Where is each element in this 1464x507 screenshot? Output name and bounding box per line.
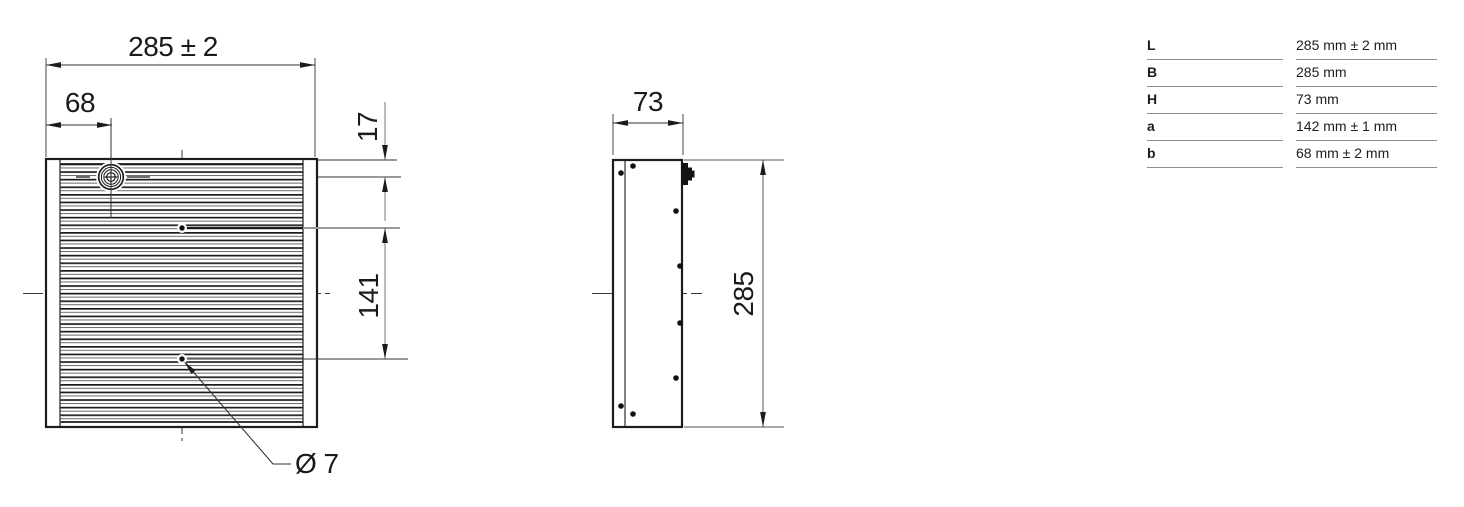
front-screw-top-dimension-label: 17 (352, 112, 383, 142)
spec-value: 285 mm (1296, 60, 1437, 87)
spec-value: 285 mm ± 2 mm (1296, 33, 1437, 60)
side-body (613, 160, 683, 427)
technical-drawing-page: 285 ± 2 68 17 141 (0, 0, 1464, 507)
spec-key: a (1147, 114, 1283, 141)
spec-value: 68 mm ± 2 mm (1296, 141, 1437, 168)
table-row: b 68 mm ± 2 mm (1147, 141, 1437, 168)
side-view: 73 285 (592, 86, 784, 427)
spec-key: L (1147, 33, 1283, 60)
front-view: 285 ± 2 68 17 141 (23, 31, 408, 479)
table-row: H 73 mm (1147, 87, 1437, 114)
side-height-dimension-label: 285 (728, 271, 759, 316)
dim-side-depth: 73 (613, 86, 683, 155)
front-width-dimension-label: 285 ± 2 (128, 31, 218, 62)
table-row: L 285 mm ± 2 mm (1147, 33, 1437, 60)
front-body (46, 159, 317, 427)
spec-key: B (1147, 60, 1283, 87)
spec-key: b (1147, 141, 1283, 168)
spec-value: 73 mm (1296, 87, 1437, 114)
front-offset-dimension-label: 68 (65, 87, 95, 118)
side-connector (682, 163, 695, 185)
table-row: a 142 mm ± 1 mm (1147, 114, 1437, 141)
hole-diameter-label: Ø 7 (295, 448, 339, 479)
table-row: B 285 mm (1147, 60, 1437, 87)
dim-front-offset: 68 (46, 87, 112, 125)
dim-front-hole-spacing: 141 (353, 228, 385, 359)
spec-value: 142 mm ± 1 mm (1296, 114, 1437, 141)
front-hole-spacing-dimension-label: 141 (353, 273, 384, 318)
spec-table: L 285 mm ± 2 mm B 285 mm H 73 mm a 142 m… (1147, 33, 1437, 168)
dim-front-screw-top: 17 (318, 102, 401, 221)
side-depth-dimension-label: 73 (633, 86, 663, 117)
spec-key: H (1147, 87, 1283, 114)
